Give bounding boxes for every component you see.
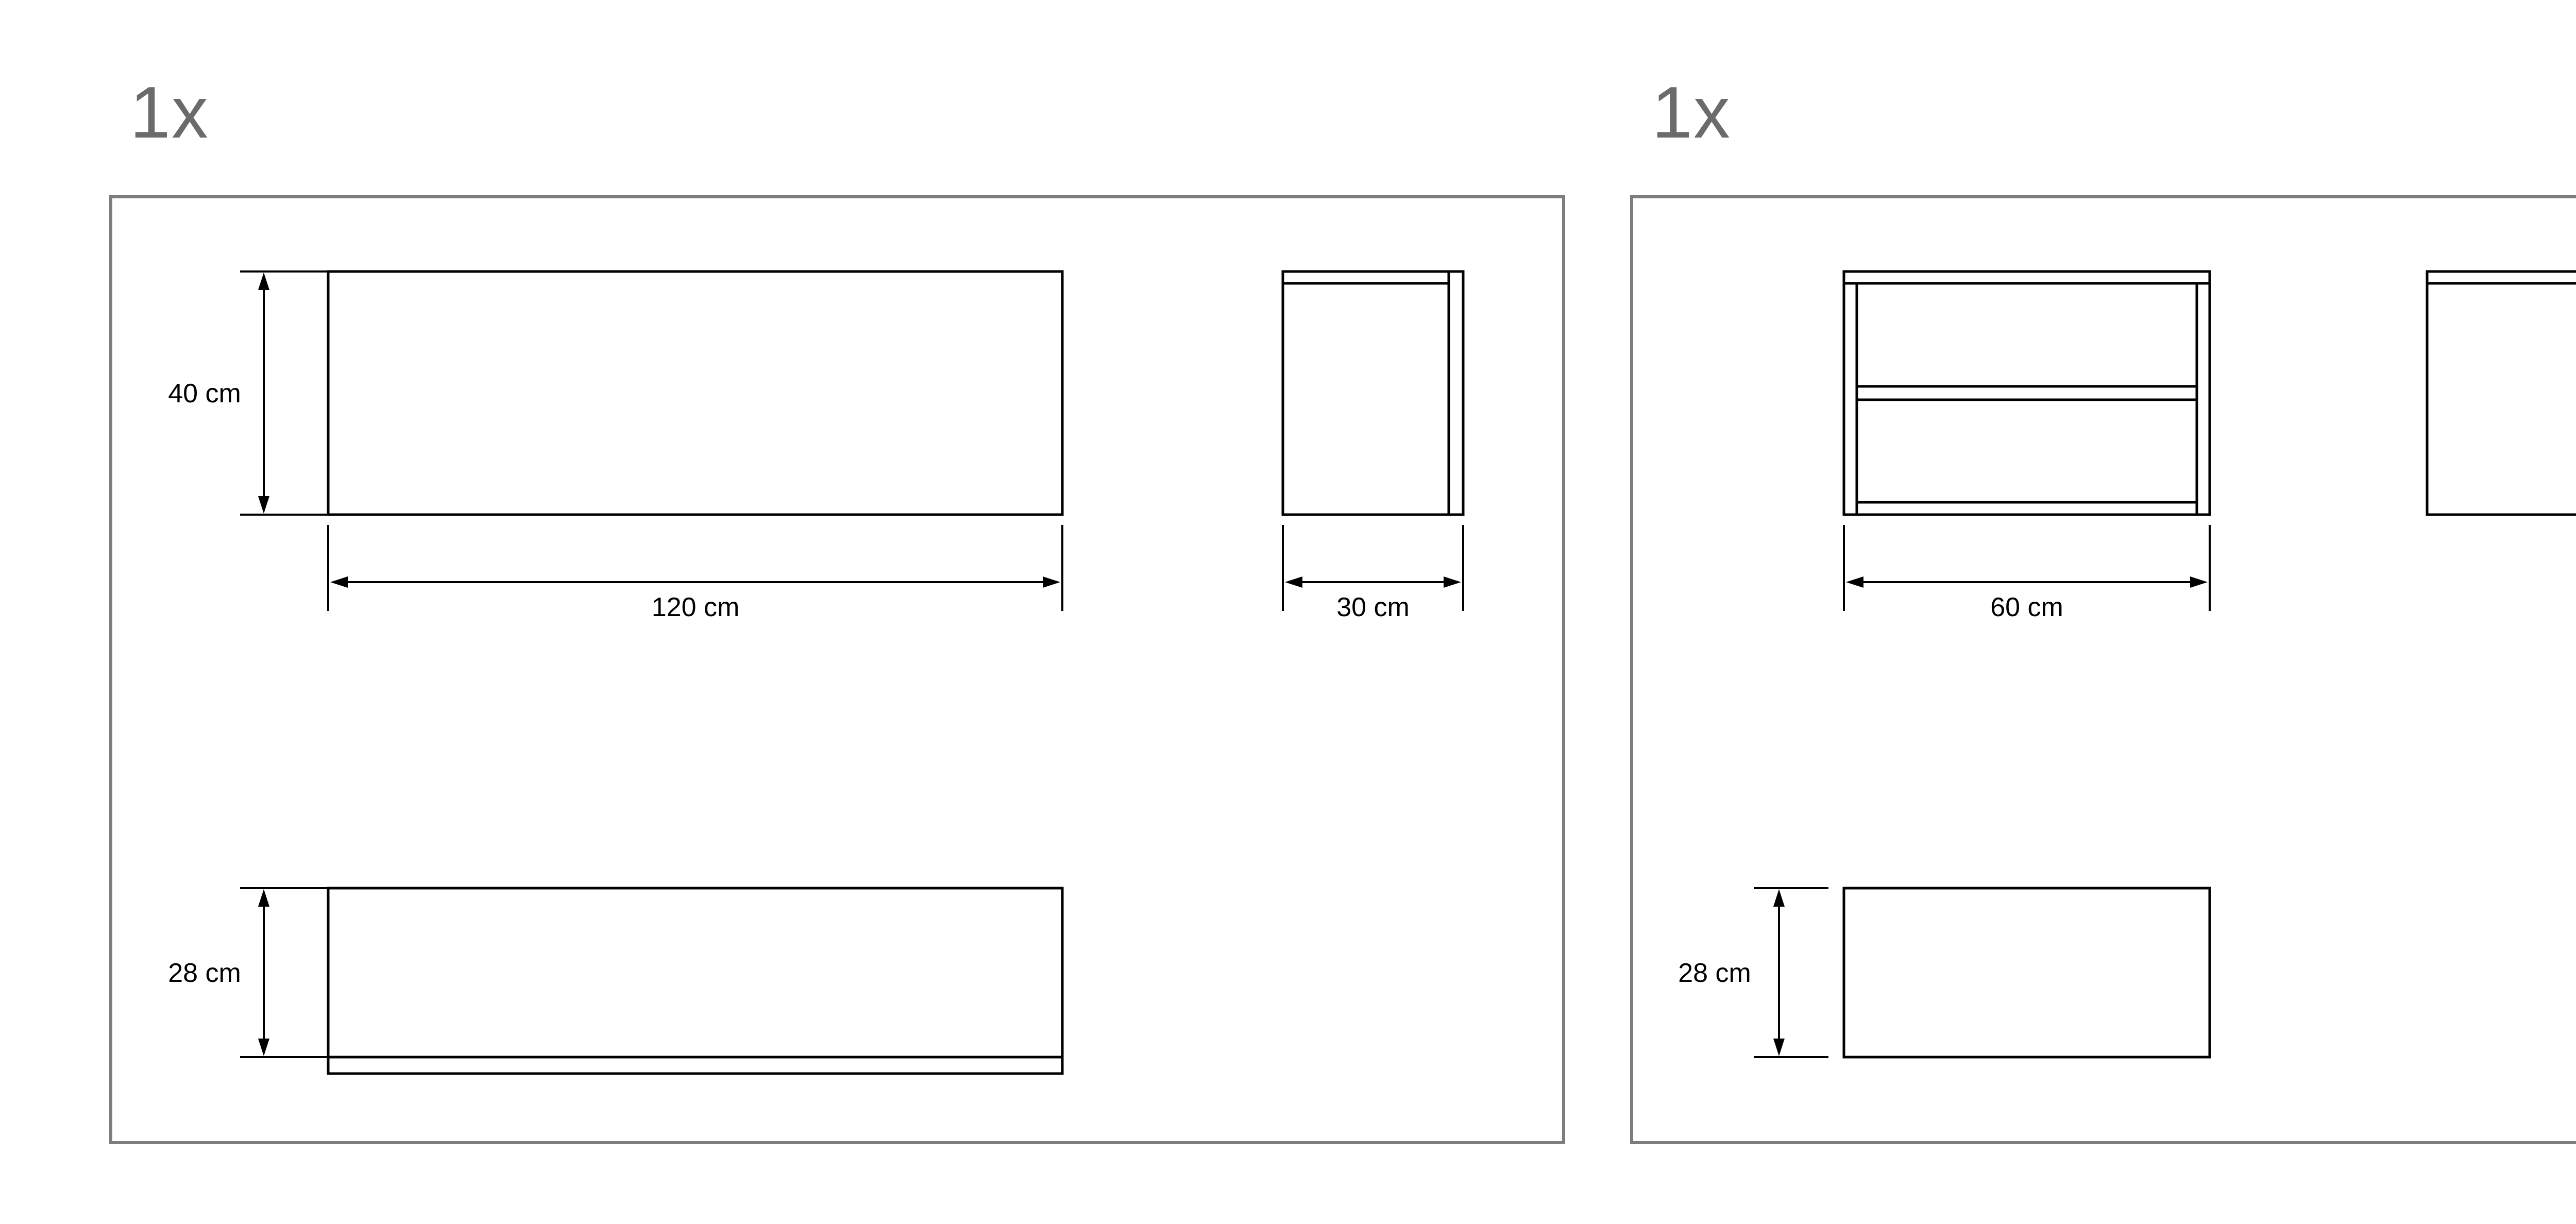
panel-2-frame	[1632, 197, 2576, 1143]
panel-2-bottom-height-dimension: 28 cm	[1678, 888, 1828, 1057]
panel-2-front-width-dimension: 60 cm	[1844, 525, 2210, 622]
panel-1-drawing: 40 cm 120 cm 30 cm	[109, 195, 1565, 1144]
panel-1-quantity-label: 1x	[130, 76, 209, 149]
panel-1-side-width-dimension: 30 cm	[1283, 525, 1463, 622]
panel-2-quantity-label: 1x	[1652, 76, 1731, 149]
panel-1-bottom-panel	[328, 888, 1062, 1074]
panel-1-bottom-height-dimension: 28 cm	[168, 888, 331, 1057]
panel-1-bottom-height-label: 28 cm	[168, 958, 241, 988]
panel-2-front-width-label: 60 cm	[1990, 592, 2063, 622]
panel-2-bottom-height-label: 28 cm	[1678, 958, 1751, 988]
panel-1-front-width-label: 120 cm	[652, 592, 740, 622]
panel-2-side-view	[2427, 271, 2576, 515]
panel-1-front-height-dimension: 40 cm	[168, 271, 331, 515]
panel-1-side-view	[1283, 271, 1463, 515]
panel-2-front-view	[1844, 271, 2210, 515]
assembly-dimension-sheet: 1x 1x 1x 40 cm 120 cm	[0, 0, 2576, 1224]
panel-1-front-view	[328, 271, 1062, 515]
panel-1-front-width-dimension: 120 cm	[328, 525, 1062, 622]
panel-1-front-height-label: 40 cm	[168, 379, 241, 409]
panel-2-drawing: 60 cm 40 cm 28 cm	[1630, 195, 2576, 1144]
panel-1-side-width-label: 30 cm	[1336, 592, 1410, 622]
panel-2-bottom-panel	[1844, 888, 2210, 1057]
